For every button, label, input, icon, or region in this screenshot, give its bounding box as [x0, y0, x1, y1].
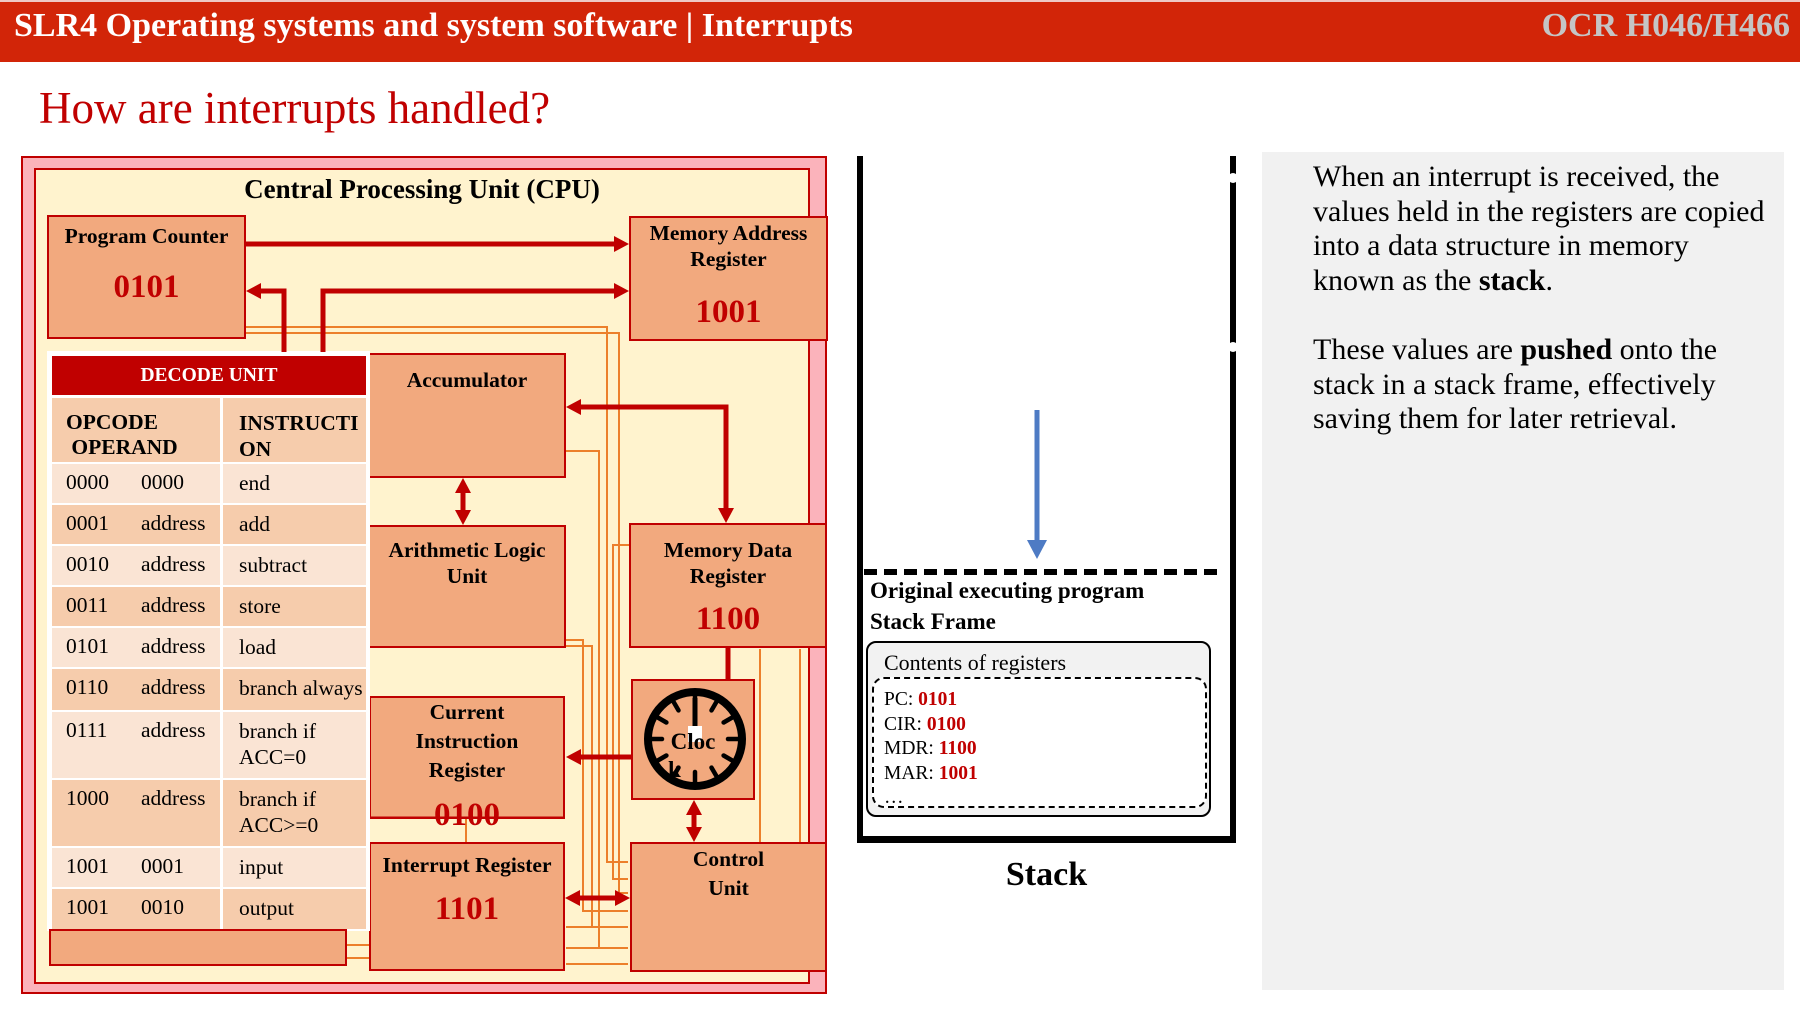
svg-text:Cloc: Cloc	[671, 729, 716, 754]
svg-text:k: k	[668, 757, 681, 782]
